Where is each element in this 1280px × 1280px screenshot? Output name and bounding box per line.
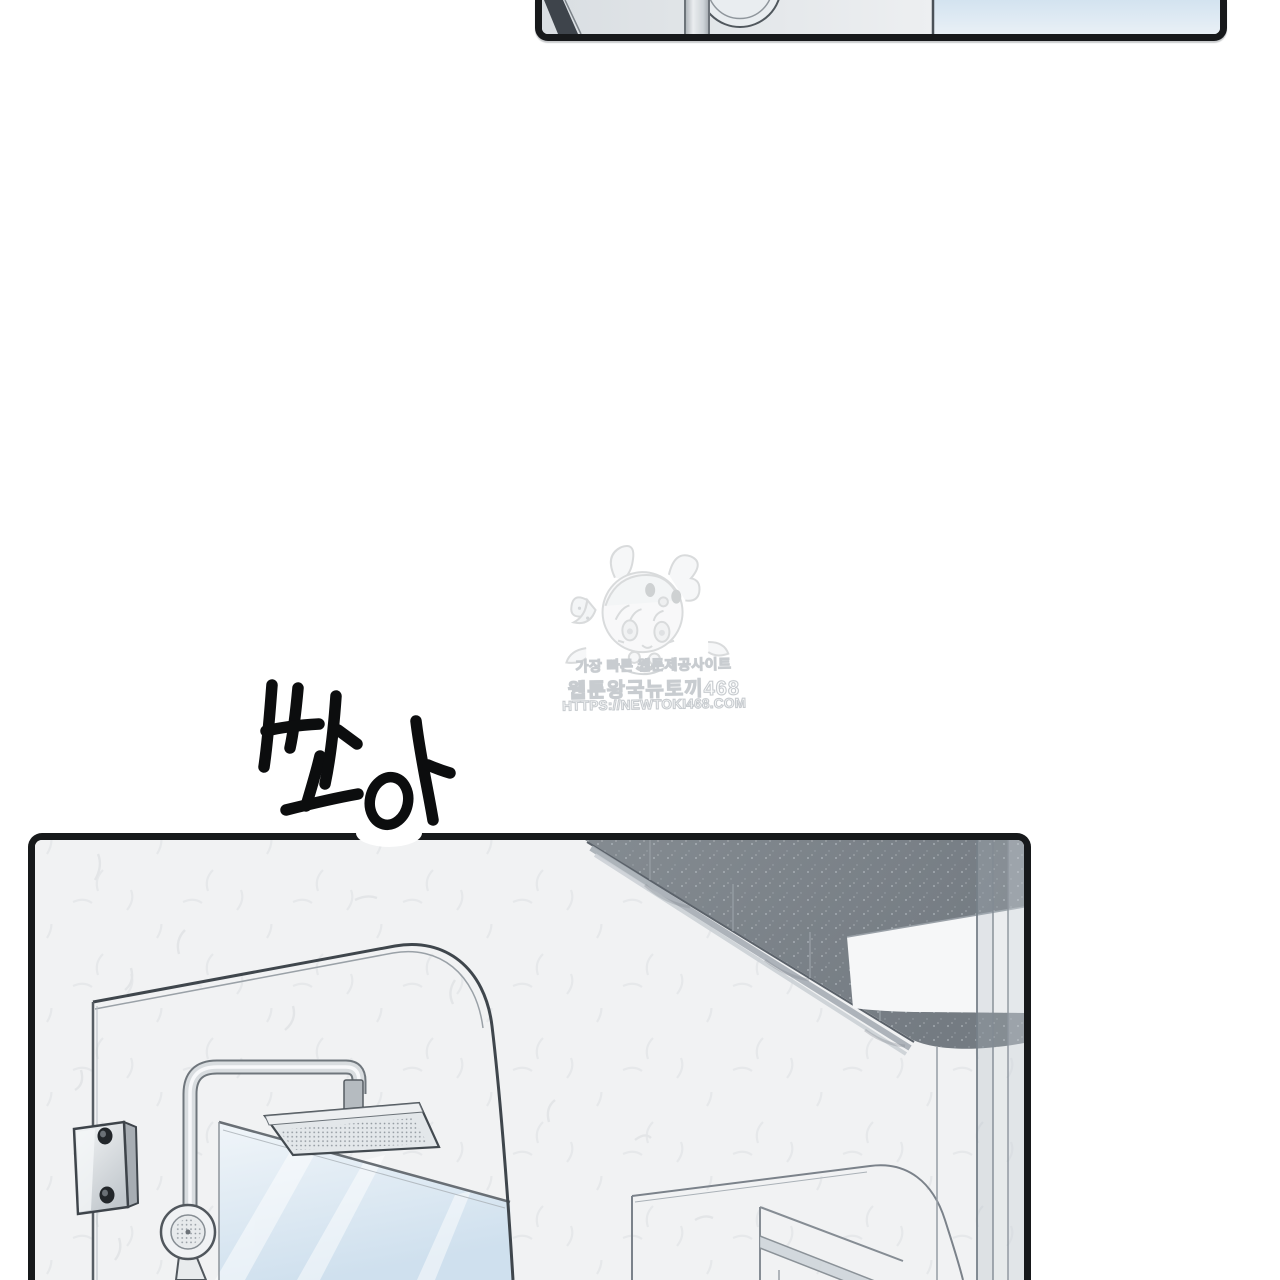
top-panel-art	[542, 0, 1220, 34]
sfx-water-sound-text	[220, 655, 500, 875]
glass-hinge-bracket	[74, 1122, 138, 1214]
shower-pole	[684, 0, 710, 34]
watermark-url-line: HTTPS://NEWTOKI468.COM	[529, 695, 779, 714]
site-watermark: 가장 빠른 웹툰제공사이트 웹툰왕국뉴토끼468 HTTPS://NEWTOKI…	[556, 533, 750, 741]
top-comic-panel	[535, 0, 1227, 41]
bathroom-scene-art	[35, 840, 1024, 1280]
webtoon-page: 가장 빠른 웹툰제공사이트 웹툰왕국뉴토끼468 HTTPS://NEWTOKI…	[0, 0, 1280, 1280]
bottom-comic-panel	[28, 833, 1031, 1280]
top-panel-glass-wall	[933, 0, 1220, 34]
